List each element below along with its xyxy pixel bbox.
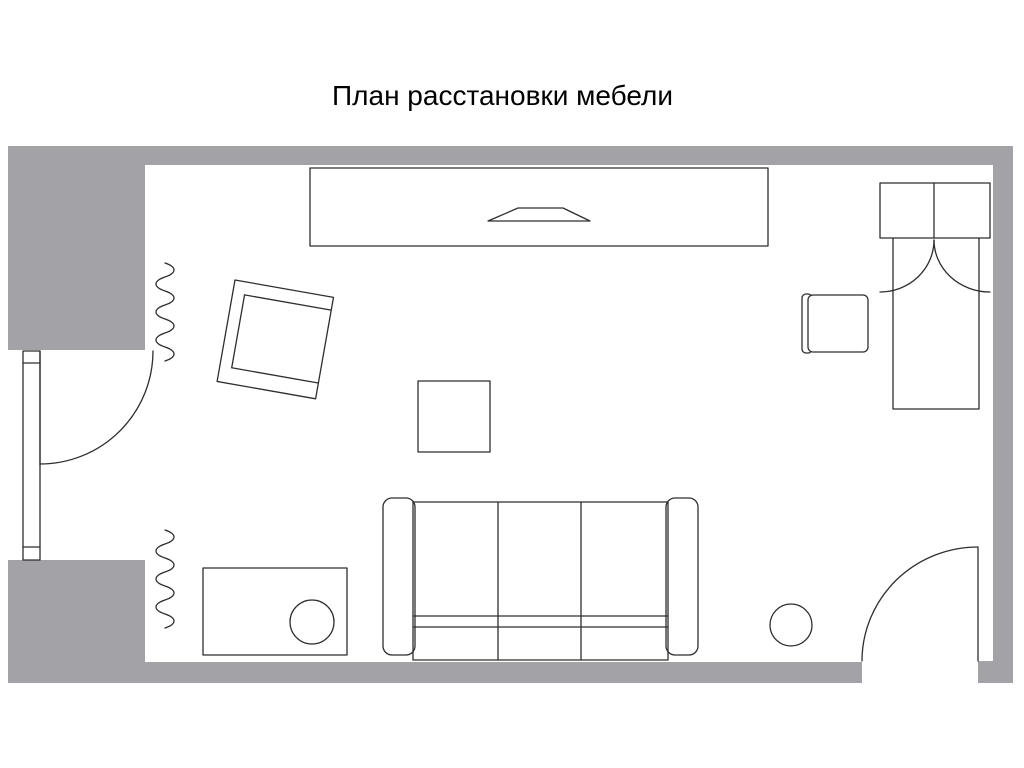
- desk-stool: [290, 600, 334, 644]
- single-bed: [880, 183, 990, 409]
- window-frame: [23, 351, 40, 560]
- bed-frame: [893, 238, 979, 409]
- chair-seat: [808, 295, 868, 352]
- armchair-outline: [217, 280, 333, 399]
- coffee-table: [418, 381, 490, 452]
- bed-headboard: [880, 183, 990, 238]
- wall-unit-with-tv: [310, 168, 768, 246]
- entrance-door: [862, 547, 978, 661]
- wall-entry-corner: [978, 661, 993, 683]
- balcony-door-swing-arc: [40, 351, 153, 464]
- sofa-armrest-right: [666, 498, 698, 655]
- bed-blanket-fold-right: [934, 240, 990, 292]
- radiator-lower-icon: [156, 530, 174, 628]
- bedside-chair: [802, 294, 868, 353]
- floor-plan-page: План расстановки мебели: [0, 0, 1024, 768]
- desk-group: [203, 568, 347, 655]
- sofa-body: [413, 502, 668, 660]
- entrance-door-swing-arc: [862, 547, 978, 661]
- bed-blanket-fold-left: [880, 240, 934, 292]
- radiator-upper-icon: [156, 263, 174, 361]
- wall-unit-outline: [310, 168, 768, 246]
- wall-top: [8, 146, 1013, 165]
- armchair: [217, 280, 333, 399]
- wall-right: [993, 146, 1013, 683]
- floor-plan-drawing: [0, 0, 1024, 768]
- three-seat-sofa: [383, 498, 698, 660]
- sofa-armrest-left: [383, 498, 415, 655]
- wall-bottom: [8, 662, 862, 683]
- pouf: [770, 604, 812, 646]
- page-title: План расстановки мебели: [0, 80, 1005, 112]
- balcony-door-with-window: [23, 351, 153, 560]
- wall-left-upper-block: [8, 146, 145, 350]
- radiators: [156, 263, 174, 628]
